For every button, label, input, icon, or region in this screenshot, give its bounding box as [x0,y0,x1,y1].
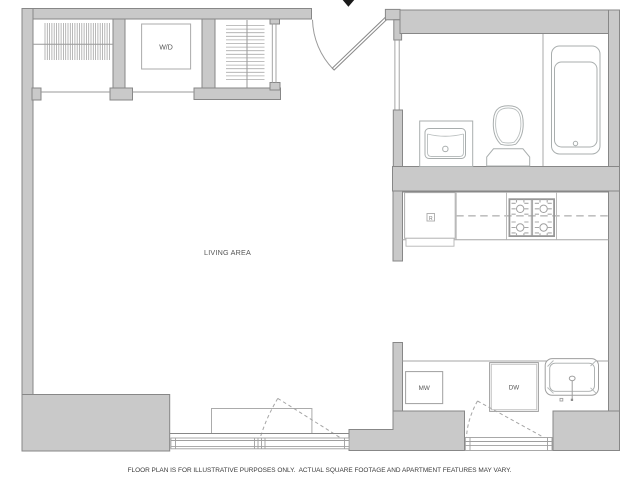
svg-text:W/D: W/D [159,45,173,52]
svg-text:DW: DW [509,385,520,392]
svg-text:MW: MW [419,385,430,392]
svg-text:FLOOR PLAN IS FOR ILLUSTRATIVE: FLOOR PLAN IS FOR ILLUSTRATIVE PURPOSES … [128,467,512,474]
svg-text:LIVING AREA: LIVING AREA [204,248,251,257]
svg-text:R: R [429,216,433,222]
